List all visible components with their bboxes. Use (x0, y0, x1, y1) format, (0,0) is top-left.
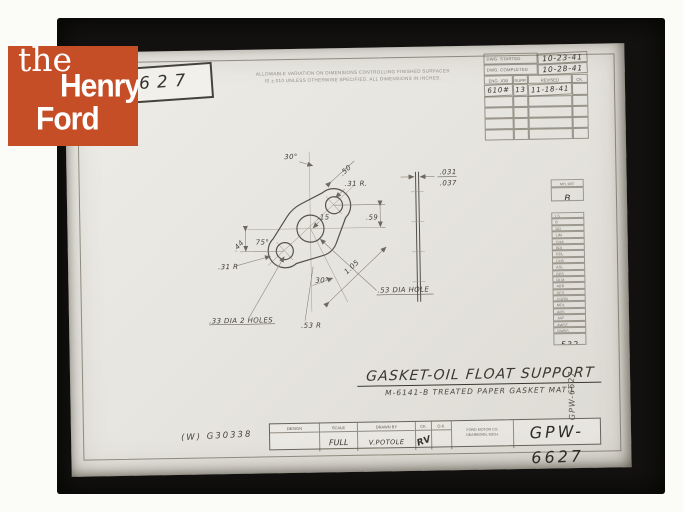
company-line2: DEARBORN, MICH. (452, 433, 513, 439)
logo-ford: Ford (36, 102, 99, 139)
margin-note-vertical: GPW-6627 (567, 344, 577, 420)
drawing-sheet: 627 ALLOWABLE VARIATION ON DIMENSIONS CO… (64, 43, 631, 477)
part-number-cell: GPW-6627 (514, 419, 600, 448)
part-number: GPW-6627 (513, 418, 601, 471)
centerlines (246, 150, 387, 312)
entry-job: 610# (484, 84, 514, 98)
dim-left: .44 (231, 239, 245, 253)
ok-label: O.K. (432, 421, 452, 430)
dim-center-hole: .53 DIA HOLE (377, 286, 429, 295)
logo-henry: Henry (60, 69, 140, 106)
scale-value: FULL (320, 432, 358, 452)
entry-supp: 13 (513, 84, 529, 97)
company-cell: FORD MOTOR CO. DEARBORN, MICH. (452, 420, 514, 449)
strip-top-box: B (551, 187, 584, 202)
dim-rad-upper: .31 R. (345, 180, 368, 188)
henry-ford-logo: the Henry Ford (8, 46, 138, 146)
dim-angle-top: 30° (284, 153, 298, 161)
strip-gap (551, 201, 584, 213)
title-block: DESIGN SCALE DRAWN BY CK. O.K. FORD MOTO… (269, 418, 601, 451)
dim-len-upper: .50 (339, 163, 354, 177)
revision-table: DWG. STARTED 10-23-41 DWG. COMPLETED 10-… (483, 52, 589, 141)
dim-thickness-min: .037 (440, 179, 457, 187)
ck-label: CK. (416, 422, 432, 431)
dim-len-lower: 1.05 (343, 258, 361, 276)
dim-angle-lower-left: 75° (256, 238, 270, 246)
table-row (485, 128, 589, 141)
dim-angle-bottom: 30° (315, 276, 329, 284)
dim-thickness-max: .031 (439, 168, 456, 176)
dim-right: .59 (366, 213, 379, 221)
dim-end-holes: .33 DIA 2 HOLES (209, 316, 273, 325)
dim-rad-middle: .53 R (301, 321, 321, 329)
distribution-strip: MTL OFF B LS B RR LIM CHA BRL RDL CHS AS… (551, 179, 587, 346)
photo-black-frame: 627 ALLOWABLE VARIATION ON DIMENSIONS CO… (57, 18, 665, 494)
title-area: GASKET-OIL FLOAT SUPPORT M-6141-B TREATE… (320, 363, 640, 399)
dimension-labels: 30° .50 .31 R. .59 .15 75° .44 .31 R 1.0… (206, 150, 459, 331)
design-value (270, 433, 320, 453)
gasket-drawing: 30° .50 .31 R. .59 .15 75° .44 .31 R 1.0… (198, 143, 471, 348)
dim-center: .15 (317, 213, 330, 221)
dim-rad-lower: .31 R (218, 263, 238, 271)
ok-value (432, 430, 452, 449)
table-row: DWG. COMPLETED 10-28-41 (484, 63, 588, 76)
section-view (400, 171, 436, 302)
corner-number: 627 (138, 70, 193, 94)
ck-signature: RV (416, 431, 432, 450)
drawn-by-value: V.POTOLE (358, 431, 416, 451)
entry-revised: 11-18-41 (528, 82, 573, 96)
col-ck: CK. (572, 74, 588, 83)
entry-ck (572, 83, 588, 95)
